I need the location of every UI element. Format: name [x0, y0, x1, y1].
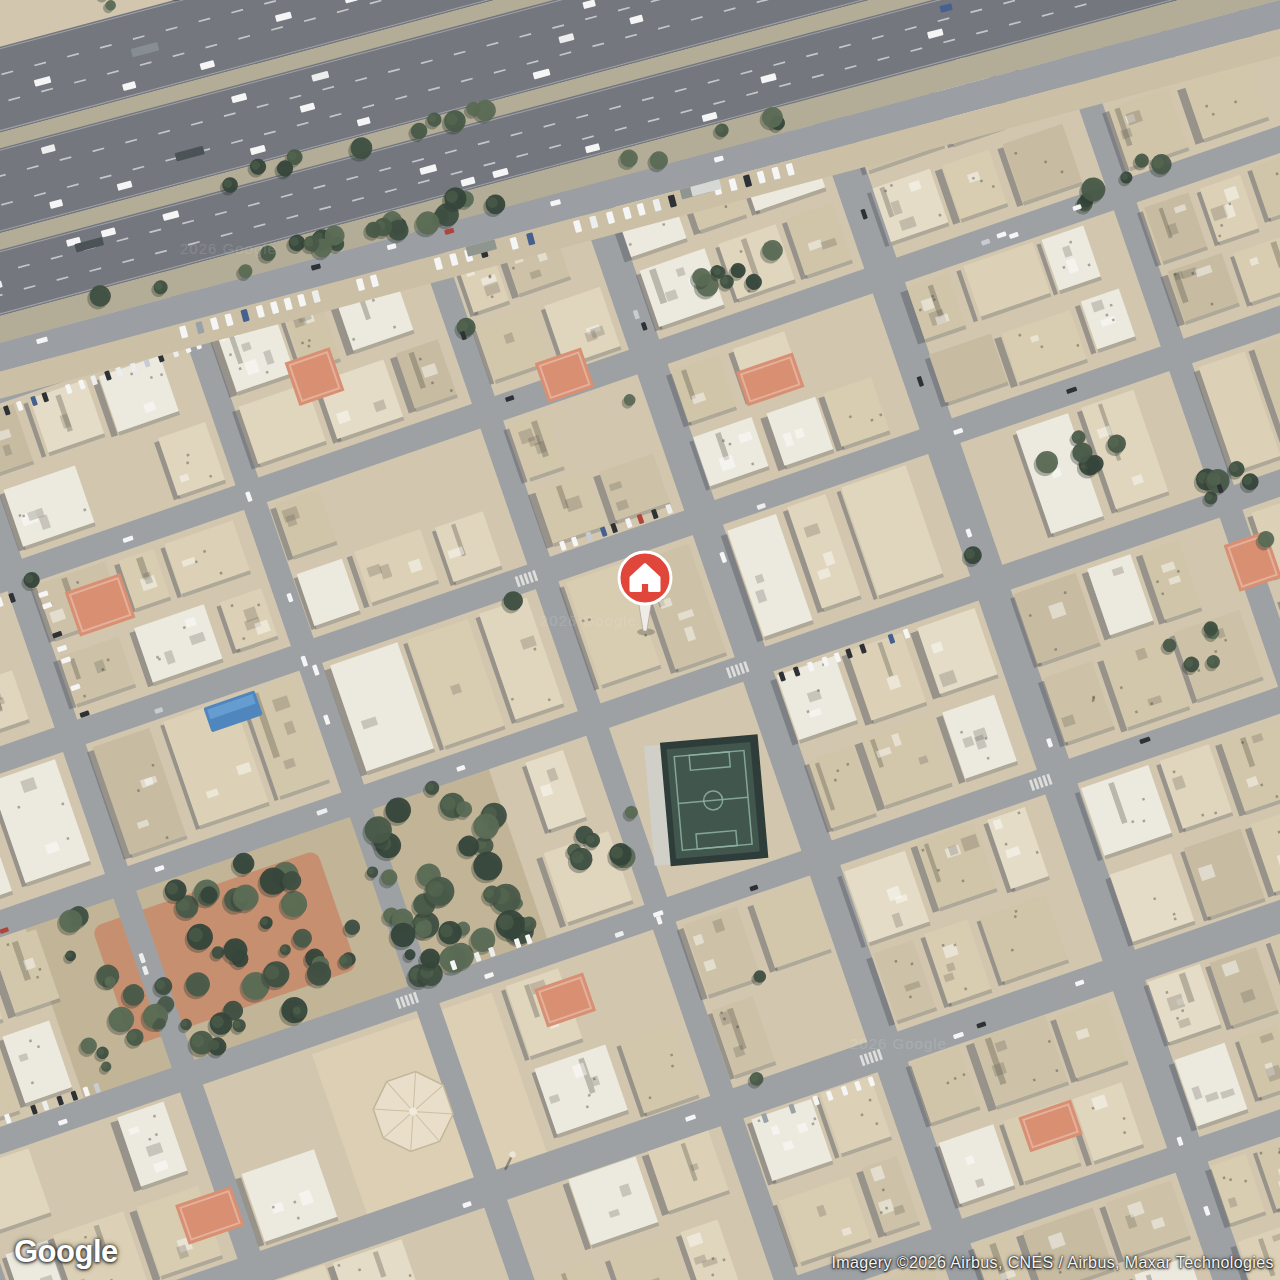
google-logo[interactable]: Google	[14, 1234, 118, 1270]
satellite-imagery	[0, 0, 1280, 1280]
soccer-field	[644, 734, 768, 867]
imagery-attribution: Imagery ©2026 Airbus, CNES / Airbus, Max…	[831, 1254, 1274, 1272]
satellite-map-viewport[interactable]: 2026 Google 2026 Google 2026 Google Goog…	[0, 0, 1280, 1280]
